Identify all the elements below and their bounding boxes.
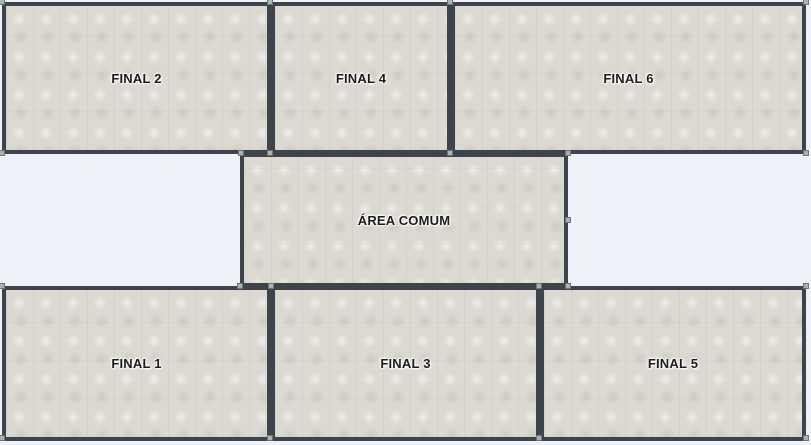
- floor-plan-canvas: FINAL 2 FINAL 4 FINAL 6 ÁREA COMUM FINAL…: [0, 0, 811, 445]
- room-final-1-label: FINAL 1: [111, 356, 161, 371]
- room-final-1[interactable]: FINAL 1: [2, 286, 271, 441]
- resize-handle[interactable]: [237, 283, 243, 289]
- resize-handle[interactable]: [0, 283, 5, 289]
- room-final-5[interactable]: FINAL 5: [540, 286, 806, 441]
- resize-handle[interactable]: [0, 0, 5, 5]
- resize-handle[interactable]: [803, 283, 809, 289]
- room-final-6-label: FINAL 6: [603, 71, 653, 86]
- room-final-6[interactable]: FINAL 6: [451, 2, 806, 154]
- resize-handle[interactable]: [267, 435, 273, 441]
- resize-handle[interactable]: [447, 0, 453, 5]
- resize-handle[interactable]: [803, 435, 809, 441]
- resize-handle[interactable]: [268, 283, 274, 289]
- resize-handle[interactable]: [447, 150, 453, 156]
- resize-handle[interactable]: [0, 435, 5, 441]
- resize-handle[interactable]: [565, 150, 571, 156]
- room-final-5-label: FINAL 5: [648, 356, 698, 371]
- resize-handle[interactable]: [0, 150, 5, 156]
- room-final-2-label: FINAL 2: [111, 71, 161, 86]
- room-final-3[interactable]: FINAL 3: [271, 286, 540, 441]
- resize-handle[interactable]: [803, 0, 809, 5]
- room-final-3-label: FINAL 3: [380, 356, 430, 371]
- resize-handle[interactable]: [803, 150, 809, 156]
- resize-handle[interactable]: [536, 283, 542, 289]
- resize-handle[interactable]: [267, 150, 273, 156]
- room-area-comum-label: ÁREA COMUM: [358, 213, 451, 228]
- room-final-4-label: FINAL 4: [336, 71, 386, 86]
- resize-handle[interactable]: [565, 283, 571, 289]
- room-final-4[interactable]: FINAL 4: [271, 2, 451, 154]
- resize-handle[interactable]: [565, 217, 571, 223]
- room-area-comum[interactable]: ÁREA COMUM: [240, 153, 568, 287]
- room-final-2[interactable]: FINAL 2: [2, 2, 271, 154]
- resize-handle[interactable]: [238, 150, 244, 156]
- resize-handle[interactable]: [267, 0, 273, 5]
- resize-handle[interactable]: [536, 435, 542, 441]
